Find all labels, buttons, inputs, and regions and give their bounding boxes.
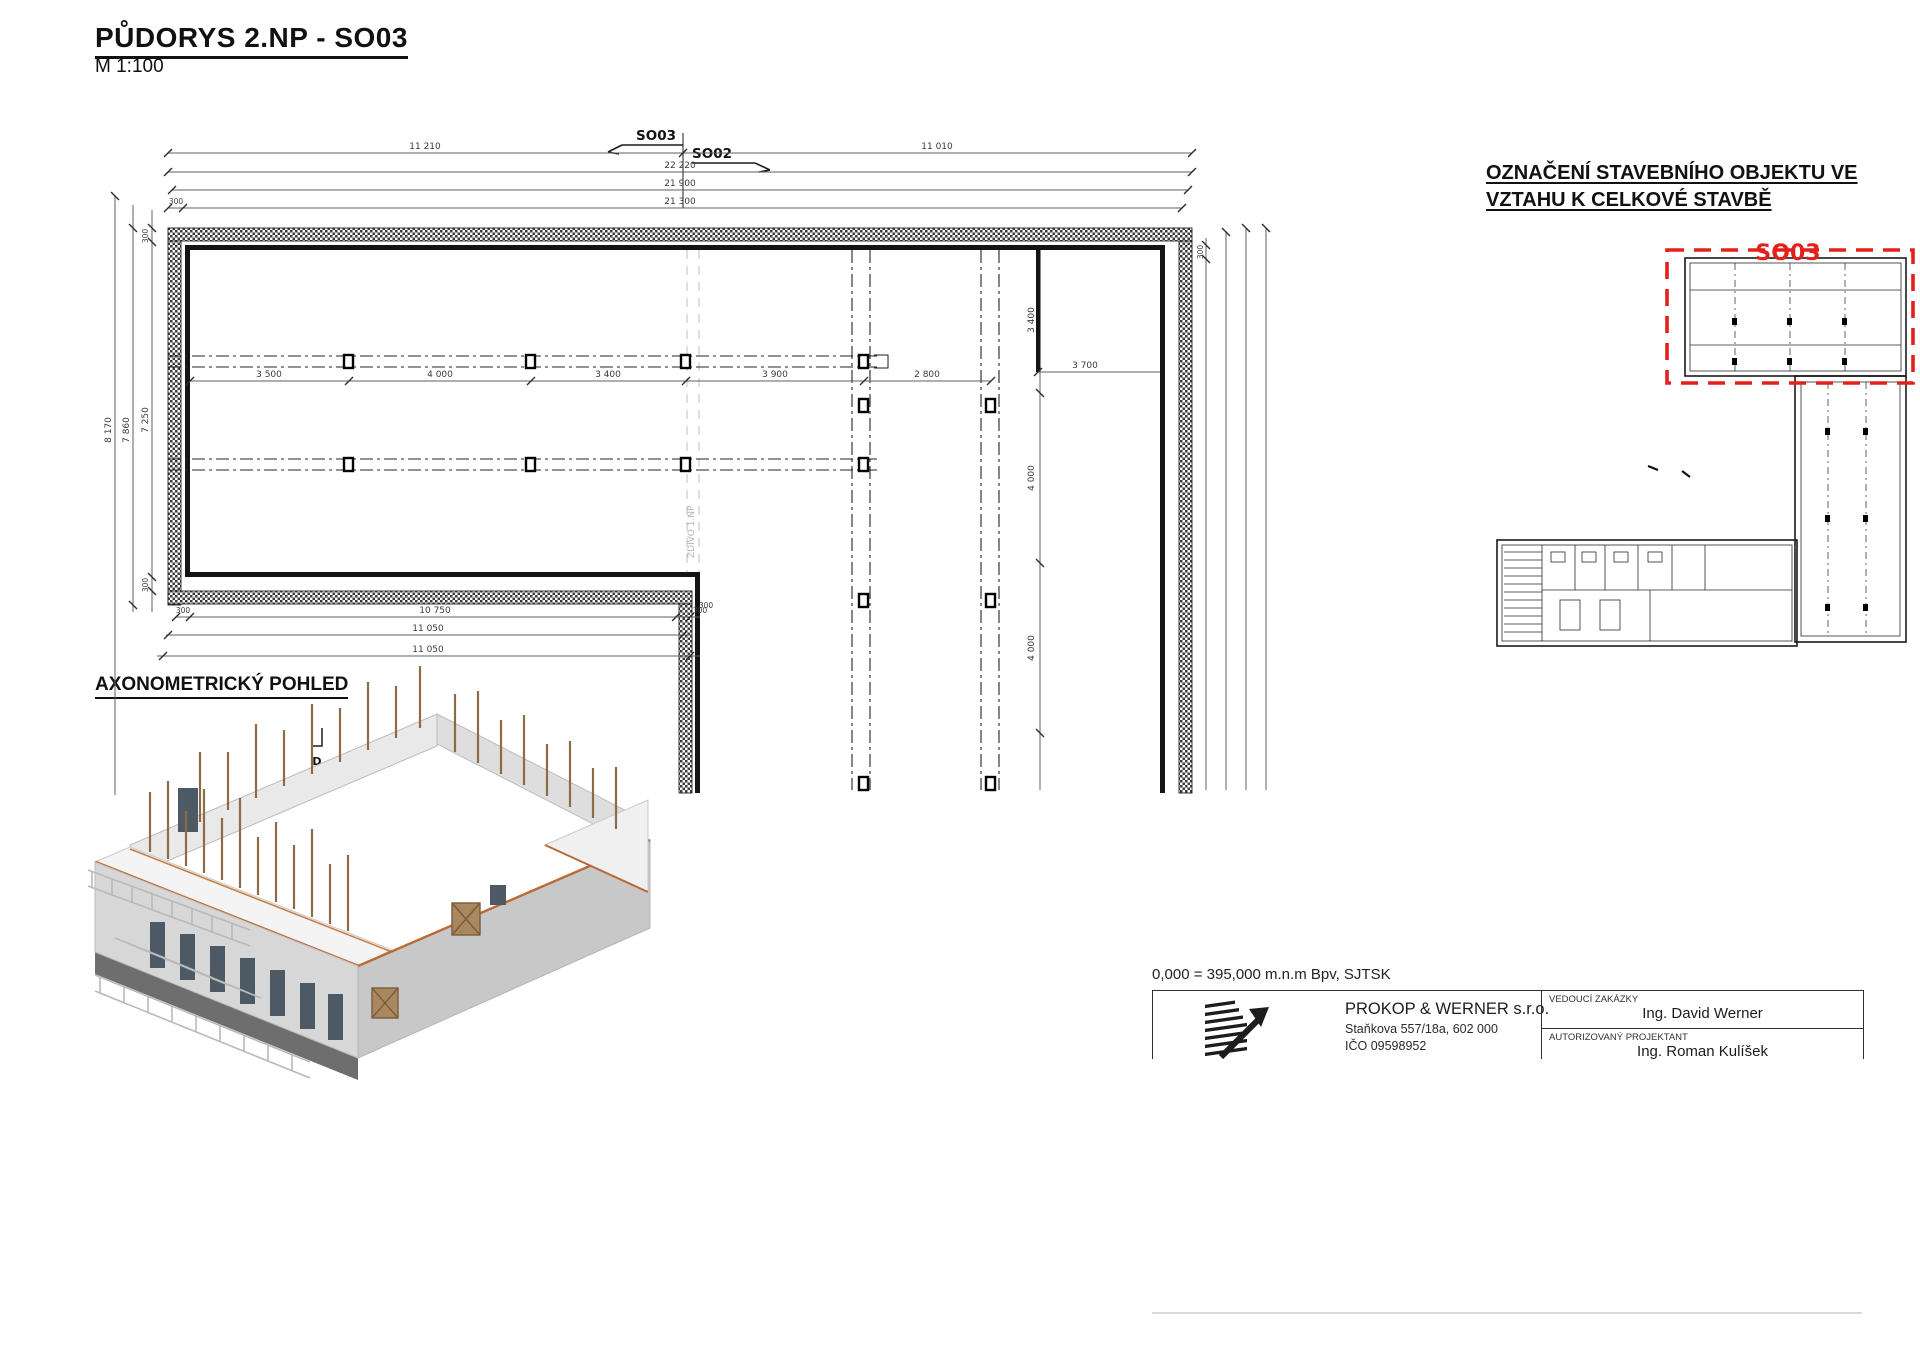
walls <box>168 228 1192 793</box>
svg-text:21 900: 21 900 <box>664 179 696 189</box>
ground-floor-note: ZDIVO 1.NP <box>687 505 697 558</box>
svg-text:2 800: 2 800 <box>914 370 940 380</box>
drawing-sheet: PŮDORYS 2.NP - SO03 M 1:100 OZNAČENÍ STA… <box>0 0 1920 1357</box>
svg-text:3 400: 3 400 <box>595 370 621 380</box>
svg-text:11 050: 11 050 <box>412 645 444 655</box>
title-block: PROKOP & WERNER s.r.o. Staňkova 557/18a,… <box>1152 990 1864 1059</box>
company-id: IČO 09598952 <box>1345 1039 1549 1053</box>
svg-text:8 170: 8 170 <box>104 417 114 443</box>
svg-text:3 900: 3 900 <box>762 370 788 380</box>
svg-text:300: 300 <box>1196 245 1205 260</box>
site-plan: SO03 <box>1497 241 1913 646</box>
svg-text:4 000: 4 000 <box>1027 465 1037 491</box>
svg-text:22 220: 22 220 <box>664 161 696 171</box>
svg-text:3 400: 3 400 <box>1027 307 1037 333</box>
title-block-divider <box>1542 1028 1863 1029</box>
svg-text:7 860: 7 860 <box>122 417 132 443</box>
svg-text:4 000: 4 000 <box>427 370 453 380</box>
company-logo-icon <box>1203 999 1283 1059</box>
label-so03: SO03 <box>636 128 676 144</box>
svg-text:300: 300 <box>176 606 191 615</box>
svg-text:300: 300 <box>141 229 150 244</box>
svg-text:11 010: 11 010 <box>921 142 953 152</box>
dimensions-top: 11 210 11 010 22 220 21 900 300 21 300 <box>164 142 1196 212</box>
svg-text:3 700: 3 700 <box>1072 361 1098 371</box>
svg-text:10 750: 10 750 <box>419 606 451 616</box>
company-address: Staňkova 557/18a, 602 000 <box>1345 1022 1549 1036</box>
floor-plan: SO03 SO02 11 210 11 010 22 220 21 900 30 <box>104 128 1270 795</box>
column-grid <box>168 250 999 790</box>
so03-highlight-label: SO03 <box>1755 241 1820 266</box>
axonometric-view <box>88 666 650 1080</box>
svg-text:11 210: 11 210 <box>409 142 441 152</box>
dimensions-middle-chain: 3 500 4 000 3 400 3 900 2 800 3 700 <box>186 361 1160 385</box>
dimensions-right-outer: 300 <box>1196 224 1270 790</box>
ground-floor-outline: ZDIVO 1.NP <box>687 250 699 572</box>
elevation-note: 0,000 = 395,000 m.n.m Bpv, SJTSK <box>1152 966 1391 983</box>
svg-text:21 300: 21 300 <box>664 197 696 207</box>
svg-text:300: 300 <box>169 197 184 206</box>
authorized-name: Ing. Roman Kulíšek <box>1542 1043 1863 1059</box>
dimensions-bottom: 300 10 750 300 11 050 11 050 300 <box>157 601 713 660</box>
svg-text:7 250: 7 250 <box>141 407 151 433</box>
svg-text:3 500: 3 500 <box>256 370 282 380</box>
dimensions-right-chain: 3 400 4 000 4 000 <box>1027 307 1044 790</box>
lead-label: VEDOUCÍ ZAKÁZKY <box>1549 994 1638 1005</box>
svg-text:11 050: 11 050 <box>412 624 444 634</box>
lead-name: Ing. David Werner <box>1542 1005 1863 1022</box>
authorized-label: AUTORIZOVANÝ PROJEKTANT <box>1549 1032 1688 1043</box>
drawing-canvas: SO03 SO02 11 210 11 010 22 220 21 900 30 <box>0 0 1920 1357</box>
svg-text:300: 300 <box>141 578 150 593</box>
dimensions-left: 8 170 7 860 300 7 250 300 <box>104 192 156 795</box>
company-name: PROKOP & WERNER s.r.o. <box>1345 1000 1549 1019</box>
svg-text:4 000: 4 000 <box>1027 635 1037 661</box>
sheet-frame-faint-line <box>1152 1312 1862 1314</box>
corner-thickness: 300 <box>699 601 714 610</box>
label-so02: SO02 <box>692 146 732 162</box>
